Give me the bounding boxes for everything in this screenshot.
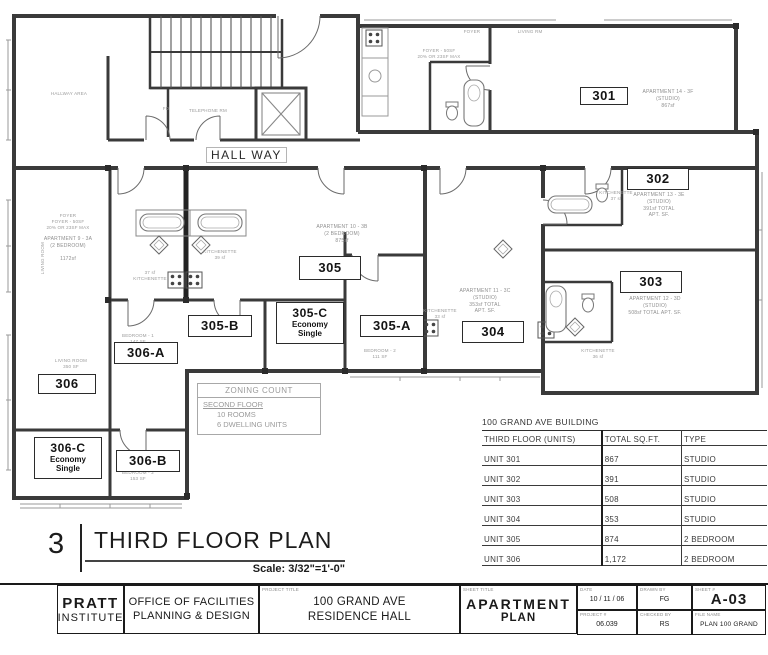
table-row: UNIT 303 508 STUDIO xyxy=(482,486,767,506)
room-tag-301: 301 xyxy=(580,87,628,105)
apartment-note: APARTMENT 9 - 3A(2 BEDROOM) 1172sf xyxy=(28,236,108,263)
drawn-by-label: DRAWN BY xyxy=(640,587,666,592)
table-header-row: THIRD FLOOR (UNITS) TOTAL SQ.FT. TYPE xyxy=(482,431,767,446)
plan-room-annotation: LIVING ROOM350 SF xyxy=(46,358,96,370)
checked-by-label: CHECKED BY xyxy=(640,612,671,617)
room-tag-306-b: 306-B xyxy=(116,450,180,472)
room-tag-305-a: 305-A xyxy=(360,315,424,337)
zoning-count-box: ZONING COUNT SECOND FLOOR 10 ROOMS 6 DWE… xyxy=(197,383,321,435)
office-line-1: OFFICE OF FACILITIES xyxy=(129,596,255,610)
file-name-value: PLAN 100 GRAND xyxy=(700,621,758,628)
unit-cell: UNIT 302 xyxy=(482,466,602,486)
file-name-label: FILE NAME xyxy=(695,612,721,617)
sheet-title-box: SHEET TITLE APARTMENT PLAN xyxy=(460,585,577,634)
plan-room-annotation: KITCHENETTE39 sf xyxy=(198,249,242,261)
type-cell: STUDIO xyxy=(681,446,767,466)
apartment-note: APARTMENT 10 - 3B(2 BEDROOM)875sf xyxy=(300,224,384,244)
checked-by-value: RS xyxy=(660,621,670,628)
title-divider xyxy=(80,524,82,572)
drawing-number: 3 xyxy=(48,528,64,561)
plan-room-annotation: FOYER - 50SF20% OR 23SF MAX xyxy=(400,48,478,60)
apartment-note: APARTMENT 12 - 3D(STUDIO)508sf TOTAL APT… xyxy=(600,296,710,316)
table-row: UNIT 302 391 STUDIO xyxy=(482,466,767,486)
firm-box: PRATT INSTITUTE xyxy=(57,585,124,634)
office-box: OFFICE OF FACILITIES PLANNING & DESIGN xyxy=(124,585,259,634)
col-header-sqft: TOTAL SQ.FT. xyxy=(602,431,682,446)
project-number-value: 06.039 xyxy=(596,621,617,628)
sqft-cell: 508 xyxy=(602,486,682,506)
zoning-title: ZONING COUNT xyxy=(198,384,320,398)
room-tag-303: 303 xyxy=(620,271,682,293)
plan-room-annotation: 37 sfKITCHENETTE xyxy=(128,270,172,282)
drawing-title: 3 THIRD FLOOR PLAN Scale: 3/32"=1'-0" xyxy=(0,520,420,580)
firm-name-2: INSTITUTE xyxy=(58,612,124,624)
zoning-floor: SECOND FLOOR xyxy=(203,400,320,410)
table-title: 100 GRAND AVE BUILDING xyxy=(482,417,767,427)
room-tag-306-a: 306-A xyxy=(114,342,178,364)
hallway-label: HALL WAY xyxy=(206,147,287,163)
room-tag-302: 302 xyxy=(627,168,689,190)
title-block: PRATT INSTITUTE OFFICE OF FACILITIES PLA… xyxy=(0,583,768,643)
sqft-cell: 391 xyxy=(602,466,682,486)
sqft-cell: 874 xyxy=(602,526,682,546)
type-cell: STUDIO xyxy=(681,486,767,506)
unit-cell: UNIT 306 xyxy=(482,546,602,566)
plan-room-annotation: FOYER xyxy=(452,29,492,35)
zoning-rooms: 10 ROOMS xyxy=(217,410,320,420)
room-tag-305: 305 xyxy=(299,256,361,280)
apartment-note: APARTMENT 13 - 3E(STUDIO)391sf TOTALAPT.… xyxy=(620,192,698,219)
sheet-title-2: PLAN xyxy=(501,612,536,624)
project-title-box: PROJECT TITLE 100 GRAND AVE RESIDENCE HA… xyxy=(259,585,460,634)
table-row: UNIT 304 353 STUDIO xyxy=(482,506,767,526)
unit-cell: UNIT 301 xyxy=(482,446,602,466)
unit-cell: UNIT 305 xyxy=(482,526,602,546)
plan-room-annotation: FD xyxy=(160,106,172,112)
type-cell: STUDIO xyxy=(681,506,767,526)
plan-room-annotation: FOYERFOYER - 50SF20% OR 23SF MAX xyxy=(28,213,108,231)
scale-note: Scale: 3/32"=1'-0" xyxy=(85,563,345,575)
type-cell: 2 BEDROOM xyxy=(681,546,767,566)
drawing-sheet: HALL WAY ZONING COUNT SECOND FLOOR 10 RO… xyxy=(0,0,768,655)
firm-name: PRATT xyxy=(62,595,118,612)
col-header-units: THIRD FLOOR (UNITS) xyxy=(482,431,602,446)
room-tag-305-b: 305-B xyxy=(188,315,252,337)
room-tag-306-c: 306-CEconomySingle xyxy=(34,437,102,479)
page-title: THIRD FLOOR PLAN xyxy=(94,527,332,554)
checked-by-box: CHECKED BY RS xyxy=(637,610,692,635)
date-label: DATE xyxy=(580,587,592,592)
zoning-units: 6 DWELLING UNITS xyxy=(217,420,320,430)
sheet-number-value: A-03 xyxy=(711,591,748,608)
project-number-box: PROJECT # 06.039 xyxy=(577,610,637,635)
plan-room-annotation: HALLWAY AREA xyxy=(38,91,100,97)
project-title-label: PROJECT TITLE xyxy=(262,587,299,592)
plan-annotations: HALL WAY ZONING COUNT SECOND FLOOR 10 RO… xyxy=(0,0,768,583)
project-title-1: 100 GRAND AVE xyxy=(313,595,406,610)
table-row: UNIT 301 867 STUDIO xyxy=(482,446,767,466)
col-header-type: TYPE xyxy=(681,431,767,446)
date-box: DATE 10 / 11 / 06 xyxy=(577,585,637,610)
type-cell: STUDIO xyxy=(681,466,767,486)
room-tag-306: 306 xyxy=(38,374,96,394)
plan-room-annotation: TELEPHONE RM xyxy=(182,108,234,114)
unit-cell: UNIT 303 xyxy=(482,486,602,506)
date-value: 10 / 11 / 06 xyxy=(590,596,625,603)
apartment-note: APARTMENT 14 - 3F(STUDIO)867sf xyxy=(632,89,704,109)
sheet-number-box: SHEET # A-03 xyxy=(692,585,766,610)
sheet-title-1: APARTMENT xyxy=(466,596,571,612)
apartment-note: APARTMENT 11 - 3C(STUDIO)353sf TOTALAPT.… xyxy=(446,288,524,315)
drawn-by-box: DRAWN BY FG xyxy=(637,585,692,610)
sqft-cell: 867 xyxy=(602,446,682,466)
room-tag-304: 304 xyxy=(462,321,524,343)
unit-cell: UNIT 304 xyxy=(482,506,602,526)
room-tag-305-c: 305-CEconomySingle xyxy=(276,302,344,344)
project-title-2: RESIDENCE HALL xyxy=(308,610,411,625)
title-underline xyxy=(85,560,345,562)
plan-room-annotation: LIVING RM xyxy=(508,29,552,35)
drawn-by-value: FG xyxy=(660,596,670,603)
table-row: UNIT 306 1,172 2 BEDROOM xyxy=(482,546,767,566)
table-row: UNIT 305 874 2 BEDROOM xyxy=(482,526,767,546)
project-number-label: PROJECT # xyxy=(580,612,606,617)
sheet-title-label: SHEET TITLE xyxy=(463,587,494,592)
file-name-box: FILE NAME PLAN 100 GRAND xyxy=(692,610,766,635)
floor-plan: HALL WAY ZONING COUNT SECOND FLOOR 10 RO… xyxy=(0,0,768,583)
office-line-2: PLANNING & DESIGN xyxy=(133,610,250,624)
sqft-cell: 353 xyxy=(602,506,682,526)
sqft-cell: 1,172 xyxy=(602,546,682,566)
type-cell: 2 BEDROOM xyxy=(681,526,767,546)
plan-room-annotation: KITCHENETTE36 sf xyxy=(576,348,620,360)
unit-schedule-table: 100 GRAND AVE BUILDING THIRD FLOOR (UNIT… xyxy=(482,417,767,566)
plan-room-annotation: BEDROOM - 2111 SF xyxy=(356,348,404,360)
sheet-number-label: SHEET # xyxy=(695,587,715,592)
